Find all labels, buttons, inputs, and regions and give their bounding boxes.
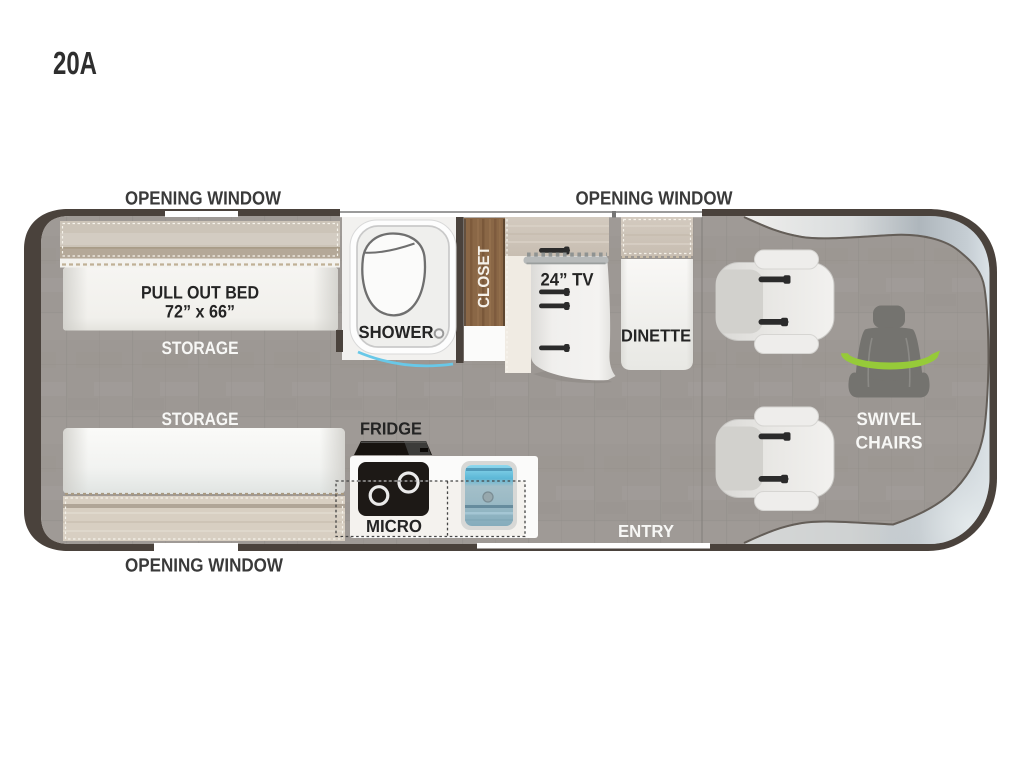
svg-text:PULL OUT BED: PULL OUT BED [141, 283, 259, 303]
svg-text:CHAIRS: CHAIRS [856, 433, 923, 453]
svg-text:CLOSET: CLOSET [476, 246, 493, 308]
svg-text:FRIDGE: FRIDGE [360, 419, 422, 439]
svg-text:DINETTE: DINETTE [621, 326, 691, 346]
svg-text:STORAGE: STORAGE [162, 338, 239, 358]
svg-text:OPENING WINDOW: OPENING WINDOW [576, 189, 733, 210]
svg-text:STORAGE: STORAGE [162, 409, 239, 429]
svg-text:20A: 20A [53, 45, 97, 81]
svg-text:ENTRY: ENTRY [618, 521, 674, 541]
svg-text:72” x 66”: 72” x 66” [165, 302, 235, 322]
svg-text:SHOWER: SHOWER [359, 322, 434, 342]
svg-text:MICRO: MICRO [366, 516, 422, 536]
svg-text:24” TV: 24” TV [541, 270, 594, 290]
svg-text:SWIVEL: SWIVEL [857, 409, 922, 429]
svg-text:OPENING WINDOW: OPENING WINDOW [125, 556, 283, 577]
svg-text:OPENING WINDOW: OPENING WINDOW [125, 189, 281, 210]
